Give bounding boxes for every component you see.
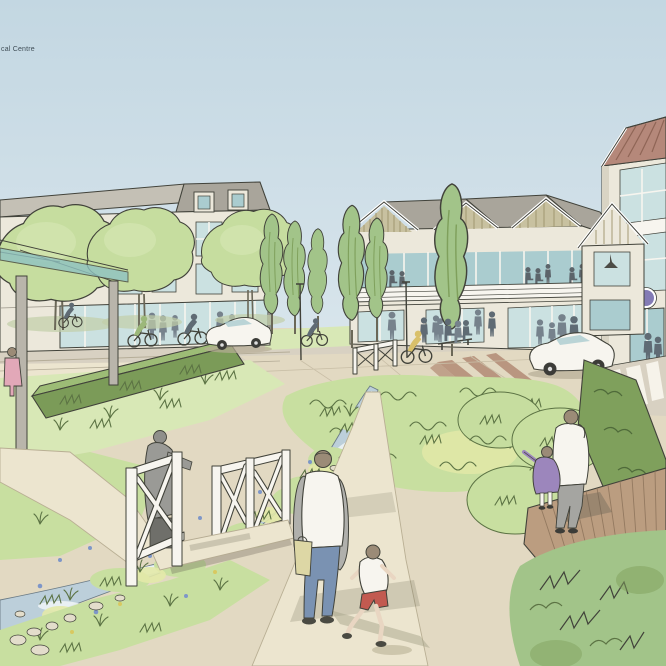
dormer [228, 190, 248, 210]
illustration-canvas: cal Centre [0, 0, 666, 666]
canopy-post [109, 281, 118, 385]
shopping-bag [294, 540, 312, 576]
balcony [352, 250, 614, 302]
mansard-roof [176, 182, 270, 212]
dormer [194, 192, 214, 212]
caption-label: cal Centre [1, 46, 35, 53]
